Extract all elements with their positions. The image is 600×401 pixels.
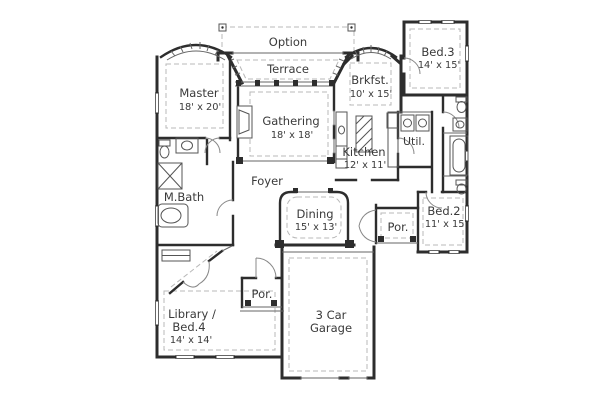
wall-terrace-corners	[218, 53, 358, 60]
room-label-option: Option	[269, 35, 307, 49]
kitchen-sink	[339, 126, 345, 134]
room-label-library: Library /	[168, 307, 216, 321]
room-label-foyer: Foyer	[251, 174, 283, 188]
dining-corner-post	[275, 240, 284, 248]
hall-bath-fixtures	[450, 97, 468, 194]
terrace-post	[293, 80, 298, 86]
room-dims-library: 14' x 14'	[170, 335, 212, 346]
room-label-bed3: Bed.3	[421, 45, 454, 59]
porch-front-steps	[240, 307, 284, 311]
terrace-post	[255, 80, 260, 86]
room-label-brkfst: Brkfst.	[351, 73, 388, 87]
room-label-dining: Dining	[296, 207, 333, 221]
room-dims-bed3: 14' x 15'	[418, 60, 460, 71]
terrace-post	[274, 80, 279, 86]
terrace-post	[329, 80, 334, 86]
dining-corner-post	[345, 240, 354, 248]
toilet-bowl	[457, 102, 466, 113]
refrigerator	[387, 113, 398, 128]
terrace-colonnade-lines	[235, 82, 333, 86]
room-label-kitchen: Kitchen	[342, 145, 385, 159]
hall-double-door-arcs	[359, 210, 376, 242]
library-diagonal-outline	[171, 251, 217, 287]
toilet	[159, 140, 170, 158]
shower	[158, 163, 182, 189]
garden-tub	[158, 204, 188, 227]
room-label-gathering: Gathering	[262, 114, 319, 128]
room-label-mbath: M.Bath	[164, 190, 204, 204]
option-post-dot	[221, 26, 223, 28]
wall-util	[398, 112, 432, 192]
room-label-library-2: Bed.4	[172, 320, 205, 334]
room-label-garage: 3 Car	[316, 308, 347, 322]
room-dims-dining: 15' x 13'	[295, 222, 337, 233]
porch-front-post	[245, 300, 251, 306]
room-label-terrace: Terrace	[266, 62, 309, 76]
fireplace	[237, 106, 252, 138]
porch-side-post	[378, 236, 384, 242]
porch-side-post	[410, 236, 416, 242]
room-dims-bed2: 11' x 15'	[425, 219, 467, 230]
kitchen-counter-right	[387, 112, 398, 167]
floor-plan-drawing: Option Terrace Bed.3 14' x 15' Master 18…	[0, 0, 600, 401]
wall-diagonal-connector	[222, 246, 232, 251]
vanity-sink	[176, 138, 198, 153]
dining-post	[293, 188, 298, 193]
gathering-post	[327, 157, 334, 164]
room-dims-master: 18' x 20'	[179, 102, 221, 113]
room-label-util: Util.	[403, 135, 425, 148]
option-post-dot	[350, 26, 352, 28]
room-dims-gathering: 18' x 18'	[271, 130, 313, 141]
vanity-sink	[453, 118, 467, 131]
floor-plan: Option Terrace Bed.3 14' x 15' Master 18…	[0, 0, 600, 401]
terrace-post	[312, 80, 317, 86]
gathering-post	[236, 157, 243, 164]
room-label-porch-side: Por.	[388, 220, 409, 234]
washer-dryer	[401, 115, 429, 131]
posts	[219, 24, 416, 306]
room-label-bed2: Bed.2	[427, 204, 460, 218]
entry-door-arc	[256, 258, 276, 278]
room-label-porch-front: Por.	[252, 287, 273, 301]
dining-post	[328, 188, 333, 193]
closet-shelf	[162, 250, 190, 261]
room-dims-brkfst: 10' x 15'	[350, 89, 392, 100]
room-dims-kitchen: 12' x 11'	[344, 160, 386, 171]
room-label-garage-2: Garage	[310, 321, 352, 335]
room-label-master: Master	[179, 86, 219, 100]
mbath-door-arc	[217, 200, 233, 216]
dryer	[416, 115, 429, 131]
washer	[401, 115, 414, 131]
terrace-post	[236, 80, 241, 86]
